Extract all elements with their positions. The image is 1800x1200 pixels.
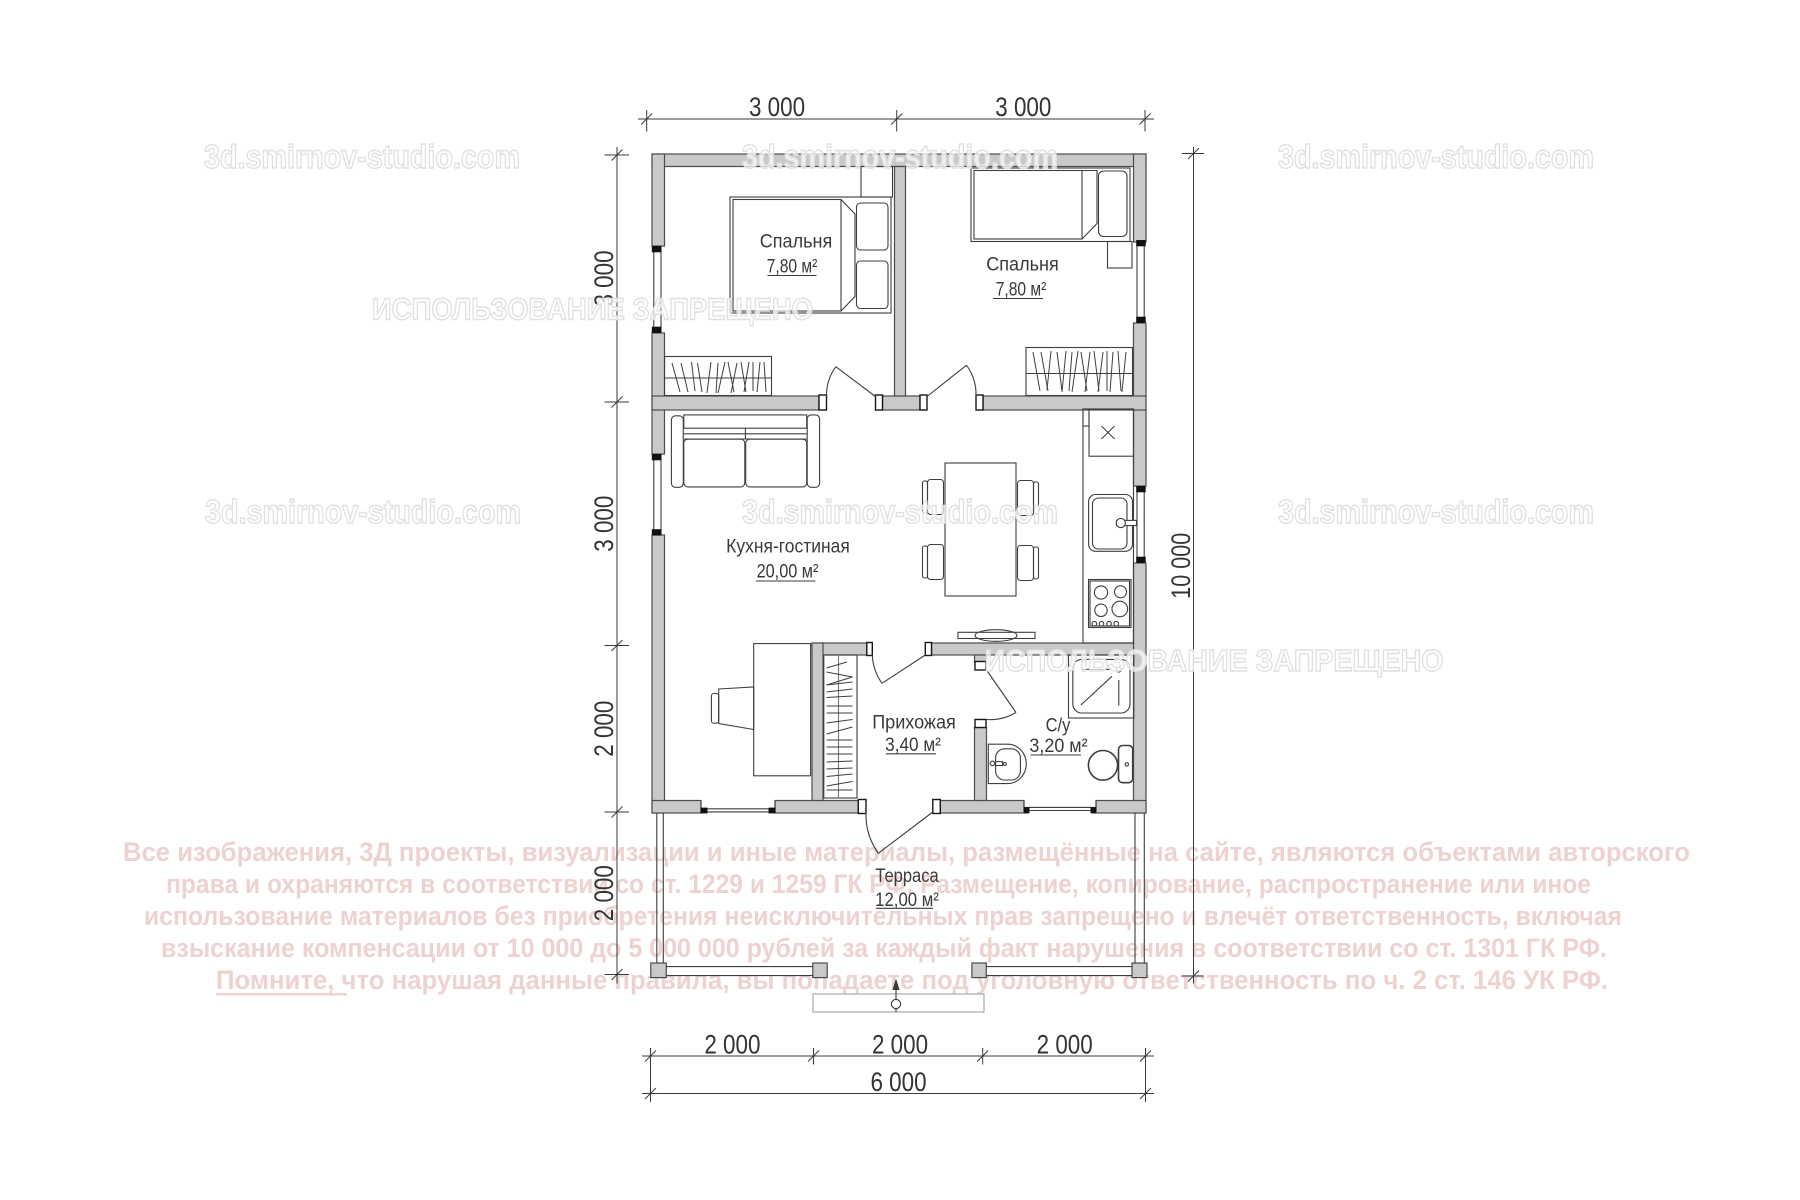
svg-text:7,80 м²: 7,80 м²	[996, 278, 1047, 300]
svg-text:ИСПОЛЬЗОВАНИЕ ЗАПРЕЩЕНО: ИСПОЛЬЗОВАНИЕ ЗАПРЕЩЕНО	[985, 643, 1444, 678]
svg-text:3d.smirnov-studio.com: 3d.smirnov-studio.com	[205, 493, 521, 530]
svg-text:Прихожая: Прихожая	[872, 711, 956, 733]
svg-text:Помните, что нарушая данные пр: Помните, что нарушая данные правила, вы …	[216, 965, 1608, 995]
svg-text:3 000: 3 000	[749, 93, 805, 122]
svg-text:Терраса: Терраса	[875, 865, 938, 886]
svg-text:3,40 м²: 3,40 м²	[885, 733, 941, 755]
svg-text:3d.smirnov-studio.com: 3d.smirnov-studio.com	[1278, 138, 1594, 175]
svg-text:2 000: 2 000	[872, 1031, 928, 1060]
svg-text:Спальня: Спальня	[760, 230, 832, 252]
svg-text:Кухня-гостиная: Кухня-гостиная	[726, 535, 850, 557]
svg-text:6 000: 6 000	[870, 1068, 926, 1097]
svg-text:7,80 м²: 7,80 м²	[767, 255, 818, 277]
svg-text:2 000: 2 000	[1037, 1031, 1093, 1060]
svg-text:3 000: 3 000	[995, 93, 1051, 122]
svg-text:10 000: 10 000	[1167, 533, 1197, 599]
svg-text:ИСПОЛЬЗОВАНИЕ ЗАПРЕЩЕНО: ИСПОЛЬЗОВАНИЕ ЗАПРЕЩЕНО	[372, 292, 813, 327]
svg-text:С/у: С/у	[1046, 714, 1071, 735]
svg-text:12,00 м²: 12,00 м²	[875, 889, 939, 910]
svg-text:Все изображения, 3Д проекты, в: Все изображения, 3Д проекты, визуализаци…	[123, 837, 1690, 867]
svg-text:3d.smirnov-studio.com: 3d.smirnov-studio.com	[742, 138, 1058, 175]
svg-text:3d.smirnov-studio.com: 3d.smirnov-studio.com	[1278, 493, 1594, 530]
svg-text:3d.smirnov-studio.com: 3d.smirnov-studio.com	[742, 493, 1058, 530]
svg-text:20,00 м²: 20,00 м²	[757, 560, 819, 582]
svg-text:2 000: 2 000	[704, 1031, 760, 1060]
svg-text:Спальня: Спальня	[986, 253, 1058, 275]
svg-text:взыскание компенсации от 10 00: взыскание компенсации от 10 000 до 5 000…	[161, 933, 1607, 963]
svg-text:3 000: 3 000	[590, 496, 619, 552]
svg-text:3d.smirnov-studio.com: 3d.smirnov-studio.com	[204, 138, 520, 175]
svg-text:2 000: 2 000	[590, 701, 619, 757]
svg-text:3,20 м²: 3,20 м²	[1029, 734, 1087, 756]
svg-text:2 000: 2 000	[590, 865, 619, 921]
